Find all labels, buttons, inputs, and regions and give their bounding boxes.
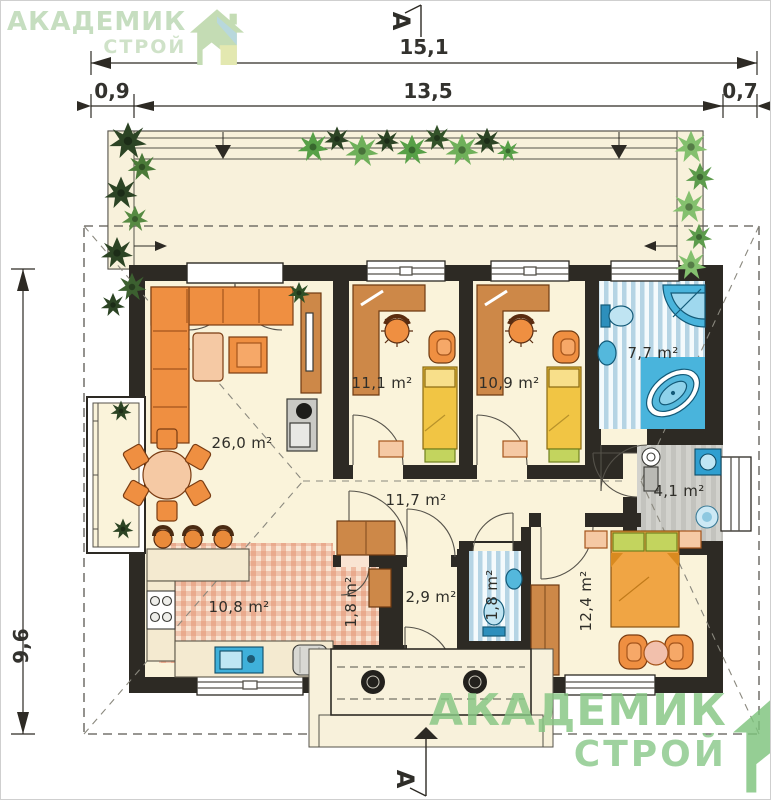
coffee-table [193, 333, 223, 381]
side-table [644, 641, 668, 665]
section-marker-top: А [387, 12, 415, 31]
fireplace [287, 399, 317, 451]
office-chair [505, 315, 537, 347]
boiler [642, 448, 660, 466]
brand-house-icon [190, 9, 244, 67]
brand-subname: СТРОЙ [103, 38, 186, 57]
small-armchair [429, 331, 455, 363]
dim-total-width: 15,1 [399, 35, 448, 59]
brand-logo-bottom: АКАДЕМИК СТРОЙ [429, 689, 771, 796]
label-bedroom-3: 12,4 m² [577, 571, 595, 632]
pantry-cabinet [369, 569, 391, 607]
label-wc: 1,8 m² [483, 569, 501, 620]
washing-machine [695, 449, 721, 475]
floor-plan-drawing [1, 1, 771, 800]
label-entry-hall: 2,9 m² [405, 588, 456, 606]
section-marker-bottom: А [391, 770, 419, 789]
label-bedroom-2: 10,9 m² [479, 374, 540, 392]
label-utility: 4,1 m² [653, 482, 704, 500]
kitchen-sink [215, 647, 263, 673]
single-bed [547, 367, 581, 462]
tv [306, 313, 313, 371]
porch-column-left [361, 670, 385, 694]
wc-sink [506, 569, 522, 589]
label-hallway: 11,7 m² [386, 491, 447, 509]
bedroom2-window [491, 261, 569, 281]
dim-left-offset: 0,9 [94, 79, 129, 103]
floor-plan-page: 15,1 0,9 13,5 0,7 9,6 А А 26,0 m² 10,8 m… [0, 0, 771, 800]
label-pantry: 1,8 m² [342, 576, 360, 627]
brand-subname: СТРОЙ [574, 737, 727, 773]
brand-name: АКАДЕМИК [429, 689, 727, 733]
bedroom1-window [367, 261, 445, 281]
bathroom-sink [598, 341, 616, 365]
brand-logo-top: АКАДЕМИК СТРОЙ [7, 9, 244, 67]
nightstand-right [679, 531, 701, 548]
single-bed [423, 367, 457, 462]
bar-counter [147, 549, 249, 581]
office-chair [381, 315, 413, 347]
brand-name: АКАДЕМИК [7, 9, 186, 35]
bedside-cabinet [503, 441, 527, 457]
toilet [601, 305, 633, 327]
label-bathroom: 7,7 m² [627, 344, 678, 362]
nightstand-left [585, 531, 607, 548]
dim-main-width: 13,5 [403, 79, 452, 103]
dim-depth: 9,6 [9, 628, 33, 663]
brand-house-icon [733, 689, 771, 796]
label-living-room: 26,0 m² [212, 434, 273, 452]
utility-window [721, 457, 751, 531]
kitchen-window [197, 675, 303, 695]
stove [147, 591, 175, 629]
bar-stools [154, 527, 232, 548]
label-bedroom-1: 11,1 m² [352, 374, 413, 392]
label-kitchen: 10,8 m² [209, 598, 270, 616]
double-bed [611, 531, 679, 627]
dim-right-offset: 0,7 [722, 79, 757, 103]
small-armchair [553, 331, 579, 363]
bathroom-window [611, 261, 679, 281]
bedside-cabinet [379, 441, 403, 457]
